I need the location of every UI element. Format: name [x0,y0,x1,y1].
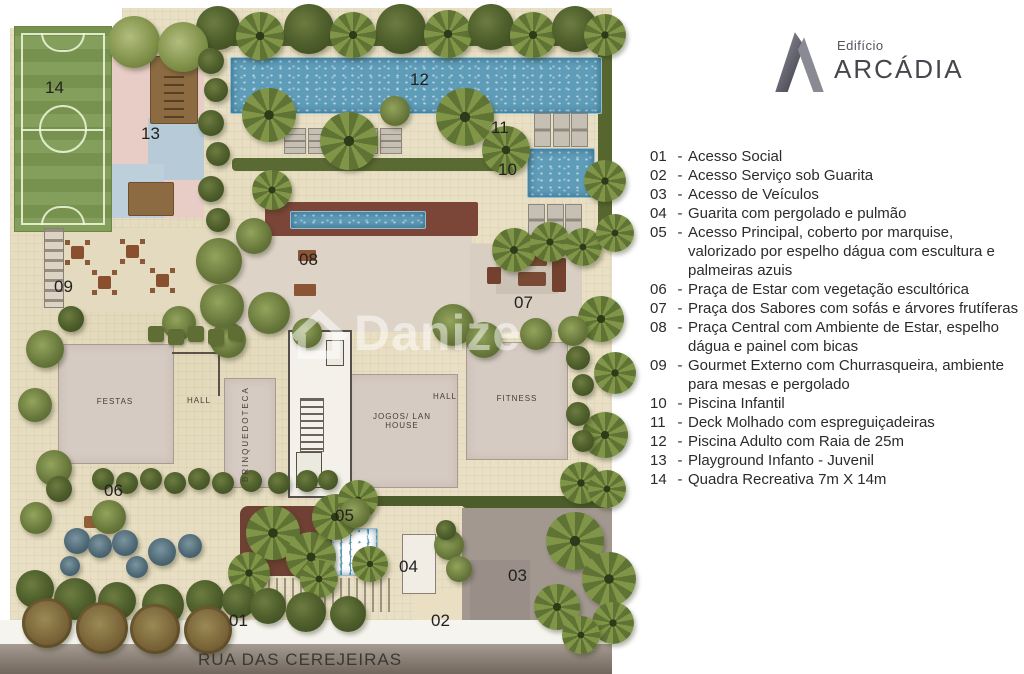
legend-separator: - [672,432,688,451]
room-label-brinquedoteca: BRINQUEDOTECA [241,388,250,482]
hedge-icon [168,329,184,345]
plan-marker-12: 12 [410,70,429,90]
tree-icon [22,598,72,648]
tree-icon [566,346,590,370]
sun-lounger-icon [380,141,402,154]
plan-zone [10,8,122,28]
field-center-circle [39,105,87,153]
table-with-chairs-icon [156,274,169,287]
plan-marker-05: 05 [335,506,354,526]
play-structure [128,182,174,216]
hedge-icon [188,326,204,342]
shrub-icon [60,556,80,576]
hedge-icon [208,329,224,345]
tree-icon [198,176,224,202]
palm-icon [584,14,626,56]
tree-icon [566,402,590,426]
legend-item: 14-Quadra Recreativa 7m X 14m [650,470,1024,489]
sun-lounger-icon [553,113,570,147]
legend-separator: - [672,451,688,470]
palm-icon [588,470,626,508]
legend-separator: - [672,394,688,413]
tree-icon [468,4,514,50]
amenities-legend: 01-Acesso Social 02-Acesso Serviço sob G… [650,147,1024,489]
tree-icon [140,468,162,490]
watermark-text: Danize [354,308,521,358]
plan-marker-02: 02 [431,611,450,631]
tree-icon [284,4,334,54]
sun-lounger-icon [284,141,306,154]
tree-icon [108,16,160,68]
hedge-icon [148,326,164,342]
legend-item-number: 05 [650,223,672,280]
legend-item-number: 07 [650,299,672,318]
shrub-icon [88,534,112,558]
legend-separator: - [672,204,688,223]
legend-item-number: 01 [650,147,672,166]
tree-icon [436,520,456,540]
watermark: Danize [290,300,521,366]
tree-icon [572,374,594,396]
tree-icon [18,388,52,422]
room-label-hall-right: HALL [424,392,466,401]
logo: Edifício ARCÁDIA [768,26,964,94]
tree-icon [196,238,242,284]
legend-item-number: 13 [650,451,672,470]
legend-item-number: 03 [650,185,672,204]
palm-icon [492,228,536,272]
legend-item: 13-Playground Infanto - Juvenil [650,451,1024,470]
tree-icon [248,292,290,334]
legend-item: 01-Acesso Social [650,147,1024,166]
legend-item-text: Piscina Infantil [688,394,1024,413]
legend-item-text: Praça dos Sabores com sofás e árvores fr… [688,299,1024,318]
legend-item-text: Gourmet Externo com Churrasqueira, ambie… [688,356,1024,394]
legend-item-number: 06 [650,280,672,299]
tree-icon [268,472,290,494]
legend-separator: - [672,356,688,394]
palm-icon [596,214,634,252]
tree-icon [380,96,410,126]
palm-icon [352,546,388,582]
tree-icon [446,556,472,582]
brochure-page: FESTAS HALL BRINQUEDOTECA JOGOS/ LAN HOU… [0,0,1024,674]
legend-item: 11-Deck Molhado com espreguiçadeiras [650,413,1024,432]
legend-item-text: Quadra Recreativa 7m X 14m [688,470,1024,489]
tree-icon [46,476,72,502]
watermark-house-icon [290,306,348,360]
logo-name: ARCÁDIA [834,54,964,85]
palm-icon [594,352,636,394]
tree-icon [296,470,318,492]
legend-item-text: Guarita com pergolado e pulmão [688,204,1024,223]
palm-icon [562,616,600,654]
legend-separator: - [672,470,688,489]
legend-item: 06-Praça de Estar com vegetação escultór… [650,280,1024,299]
legend-separator: - [672,280,688,299]
legend-separator: - [672,185,688,204]
legend-item-text: Praça Central com Ambiente de Estar, esp… [688,318,1024,356]
legend-item: 03-Acesso de Veículos [650,185,1024,204]
shrub-icon [178,534,202,558]
tree-icon [188,468,210,490]
shrub-icon [112,530,138,556]
site-plan: FESTAS HALL BRINQUEDOTECA JOGOS/ LAN HOU… [0,0,640,674]
legend-item-text: Praça de Estar com vegetação escultórica [688,280,1024,299]
logo-building-word: Edifício [837,38,964,53]
tree-icon [184,606,232,654]
table-with-chairs-icon [126,245,139,258]
logo-text: Edifício ARCÁDIA [834,38,964,85]
room-label-fitness: FITNESS [486,394,548,403]
plan-marker-09: 09 [54,277,73,297]
legend-item-number: 09 [650,356,672,394]
legend-item-number: 14 [650,470,672,489]
legend-item-number: 04 [650,204,672,223]
pool [290,211,426,229]
legend-separator: - [672,166,688,185]
shrub-icon [148,538,176,566]
plan-marker-11: 11 [491,118,509,138]
legend-item-text: Deck Molhado com espreguiçadeiras [688,413,1024,432]
legend-item-text: Acesso Serviço sob Guarita [688,166,1024,185]
plan-marker-10: 10 [498,160,517,180]
tree-icon [204,78,228,102]
tree-icon [200,284,244,328]
tree-icon [212,472,234,494]
tree-icon [318,470,338,490]
palm-icon [424,10,472,58]
legend-separator: - [672,223,688,280]
plan-marker-06: 06 [104,481,123,501]
palm-icon [510,12,556,58]
wall-outline [172,352,220,396]
shrub-icon [126,556,148,578]
legend-separator: - [672,413,688,432]
tree-icon [250,588,286,624]
legend-item-number: 11 [650,413,672,432]
tree-icon [286,592,326,632]
legend-item: 04-Guarita com pergolado e pulmão [650,204,1024,223]
room-label-jogos-lan-house: JOGOS/ LAN HOUSE [372,412,432,430]
plan-marker-01: 01 [229,611,248,631]
plan-zone [294,284,316,296]
legend-item-number: 08 [650,318,672,356]
tree-icon [236,218,272,254]
tree-icon [198,48,224,74]
sun-lounger-icon [571,113,588,147]
table-with-chairs-icon [71,246,84,259]
legend-item: 08-Praça Central com Ambiente de Estar, … [650,318,1024,356]
palm-icon [584,160,626,202]
plan-marker-04: 04 [399,557,418,577]
palm-icon [236,12,284,60]
legend-item: 07-Praça dos Sabores com sofás e árvores… [650,299,1024,318]
plan-zone [232,158,514,171]
legend-item-text: Piscina Adulto com Raia de 25m [688,432,1024,451]
palm-icon [242,88,296,142]
legend-item-number: 02 [650,166,672,185]
legend-item-text: Acesso de Veículos [688,185,1024,204]
legend-separator: - [672,147,688,166]
legend-item-text: Playground Infanto - Juvenil [688,451,1024,470]
plan-marker-08: 08 [299,250,318,270]
palm-icon [582,552,636,606]
plan-marker-14: 14 [45,78,64,98]
tree-icon [198,110,224,136]
street-name: RUA DAS CEREJEIRAS [20,650,580,670]
legend-separator: - [672,299,688,318]
sun-lounger-icon [380,128,402,141]
shrub-icon [64,528,90,554]
plan-zone [518,272,546,286]
sports-court [14,26,112,232]
tree-icon [20,502,52,534]
palm-icon [330,12,376,58]
legend-item-text: Acesso Social [688,147,1024,166]
legend-item-number: 12 [650,432,672,451]
hedge-icon [228,326,242,340]
table-with-chairs-icon [98,276,111,289]
plan-zone [487,267,501,284]
legend-item-number: 10 [650,394,672,413]
plan-zone [552,258,566,292]
stair-icon [300,398,324,452]
palm-icon [252,170,292,210]
plan-marker-03: 03 [508,566,527,586]
room-label-festas: FESTAS [70,397,160,406]
tree-icon [330,596,366,632]
tree-icon [206,142,230,166]
tree-icon [520,318,552,350]
tree-icon [92,500,126,534]
palm-icon [320,112,378,170]
legend-separator: - [672,318,688,356]
ladder-icon [164,74,184,118]
room-label-hall-left: HALL [178,396,220,405]
tree-icon [572,430,594,452]
tree-icon [164,472,186,494]
tree-icon [26,330,64,368]
tree-icon [76,602,128,654]
legend-item-text: Acesso Principal, coberto por marquise, … [688,223,1024,280]
legend-item: 10-Piscina Infantil [650,394,1024,413]
sun-lounger-icon [534,113,551,147]
tree-icon [130,604,180,654]
legend-item: 05-Acesso Principal, coberto por marquis… [650,223,1024,280]
tree-icon [558,316,588,346]
tree-icon [58,306,84,332]
legend-item: 02-Acesso Serviço sob Guarita [650,166,1024,185]
plan-marker-13: 13 [141,124,160,144]
legend-item: 12-Piscina Adulto com Raia de 25m [650,432,1024,451]
legend-item: 09-Gourmet Externo com Churrasqueira, am… [650,356,1024,394]
logo-mountain-a-icon [768,26,832,94]
tree-icon [376,4,426,54]
tree-icon [206,208,230,232]
